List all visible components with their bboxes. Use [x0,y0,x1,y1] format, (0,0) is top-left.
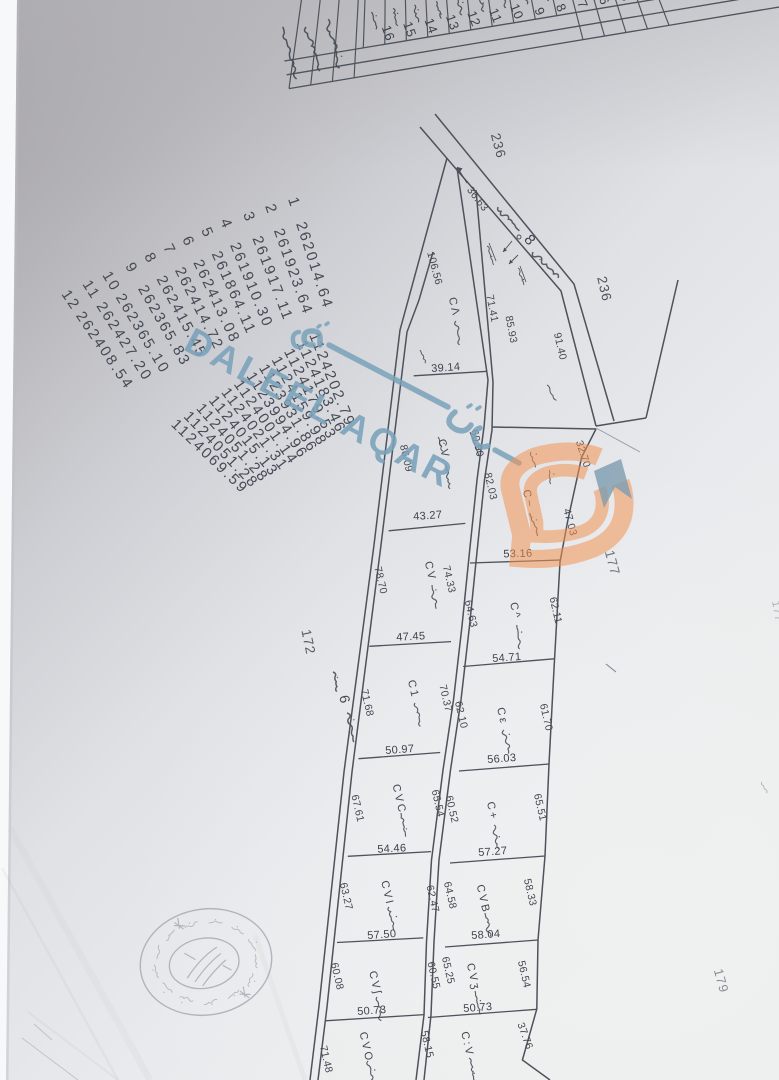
svg-text:50.73: 50.73 [357,1004,387,1018]
svg-text:50.97: 50.97 [385,743,415,757]
svg-text:43.27: 43.27 [413,509,443,523]
svg-text:56.03: 56.03 [487,752,517,766]
svg-text:54.46: 54.46 [377,842,407,856]
svg-text:54.71: 54.71 [492,651,522,665]
svg-text:47.45: 47.45 [396,630,426,644]
svg-text:57.50: 57.50 [367,928,397,942]
svg-text:39.14: 39.14 [431,361,461,375]
svg-text:57.27: 57.27 [478,845,508,859]
